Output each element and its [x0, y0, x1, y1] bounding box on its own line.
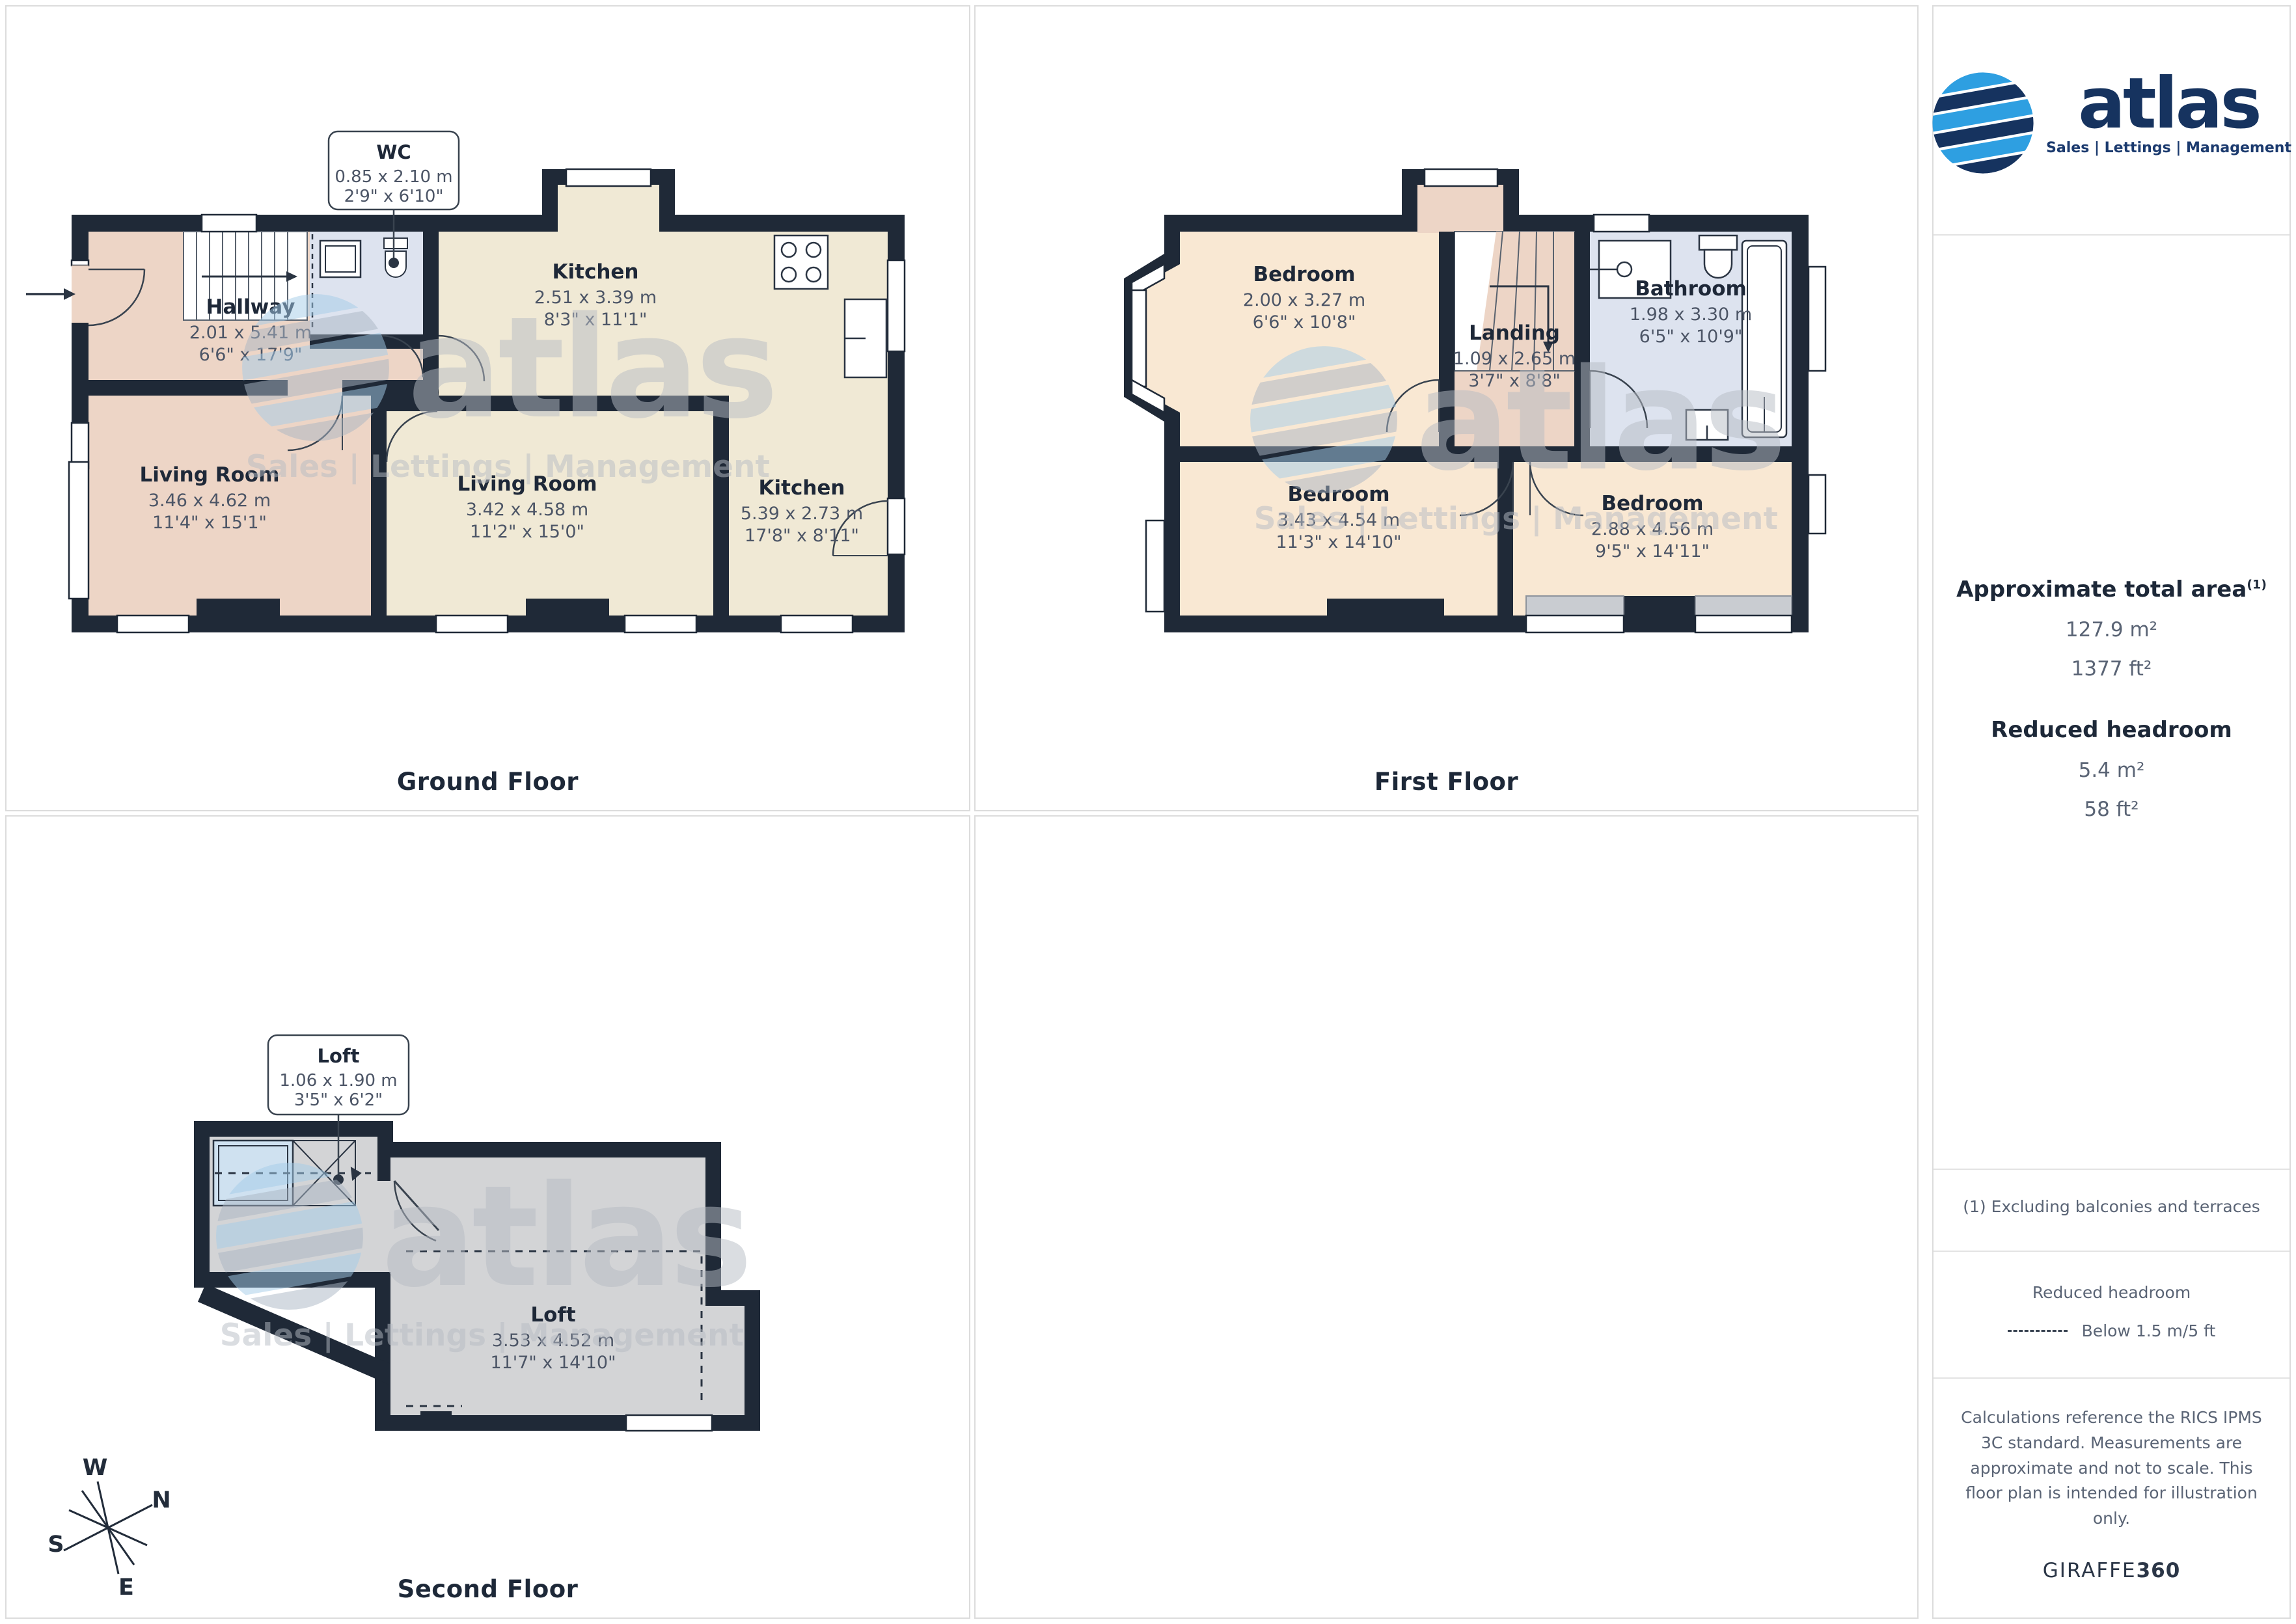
reduced-headroom-metric: 5.4 m²: [1934, 759, 2289, 782]
room-size-imperial: 11'2" x 15'0": [470, 522, 584, 542]
toilet-icon: [384, 238, 407, 277]
room-size-imperial: 17'8" x 8'11": [745, 526, 859, 546]
second-floor-panel: atlas Sales | Lettings | Management: [5, 815, 970, 1619]
loft-shower-icon: [213, 1141, 293, 1206]
room-name: Loft: [530, 1303, 576, 1327]
compass-south: S: [48, 1532, 64, 1558]
room-size-metric: 5.39 x 2.73 m: [741, 504, 863, 524]
room-size-metric: 1.09 x 2.65 m: [1453, 349, 1576, 369]
compass-west: W: [83, 1455, 108, 1481]
floor-label-second: Second Floor: [7, 1575, 969, 1603]
sidebar-divider: [1934, 234, 2289, 236]
sidebar-divider: [1934, 1377, 2289, 1379]
sink-icon: [1686, 410, 1728, 440]
room-name: Living Room: [457, 472, 597, 496]
room-size-imperial: 11'3" x 14'10": [1276, 532, 1401, 552]
room-size-metric: 3.46 x 4.62 m: [148, 491, 271, 511]
info-sidebar: atlas Sales | Lettings | Management Appr…: [1932, 5, 2291, 1619]
disclaimer-block: Calculations reference the RICS IPMS 3C …: [1934, 1405, 2289, 1582]
room-size-metric: 2.51 x 3.39 m: [534, 288, 657, 308]
total-area-imperial: 1377 ft²: [1934, 657, 2289, 681]
dashed-line-sample: [2008, 1330, 2068, 1332]
room-name: Living Room: [139, 463, 279, 487]
ground-floor-panel: atlas Sales | Lettings | Management: [5, 5, 970, 811]
room-name: Loft: [318, 1045, 360, 1067]
reduced-headroom-imperial: 58 ft²: [1934, 798, 2289, 821]
atlas-logo: atlas Sales | Lettings | Management: [1934, 72, 2289, 174]
room-size-imperial: 6'5" x 10'9": [1639, 327, 1743, 347]
floor-label-ground: Ground Floor: [7, 768, 969, 796]
room-size-metric: 3.42 x 4.58 m: [466, 500, 588, 520]
giraffe360-credit: GIRAFFE360: [1934, 1559, 2289, 1582]
room-size-imperial: 6'6" x 10'8": [1253, 312, 1356, 332]
disclaimer-text: Calculations reference the RICS IPMS 3C …: [1934, 1405, 2289, 1532]
atlas-globe-icon: [1932, 72, 2034, 174]
room-name: Bedroom: [1601, 492, 1703, 515]
room-size-imperial: 3'7" x 8'8": [1468, 371, 1561, 391]
ground-floor-plan: WC 0.85 x 2.10 m 2'9" x 6'10" Hallway 2.…: [7, 7, 969, 787]
room-name: Kitchen: [552, 260, 638, 284]
room-name: WC: [376, 141, 411, 163]
room-name: Bathroom: [1635, 277, 1747, 301]
room-name: Bedroom: [1287, 483, 1389, 506]
sidebar-divider: [1934, 1169, 2289, 1170]
wc-room: [310, 232, 423, 349]
hob-icon: [774, 236, 828, 289]
room-size-metric: 0.85 x 2.10 m: [335, 167, 452, 187]
total-area-block: Approximate total area(1) 127.9 m² 1377 …: [1934, 576, 2289, 821]
logo-tagline: Sales | Lettings | Management: [2046, 140, 2291, 156]
legend-item: Below 1.5 m/5 ft: [2082, 1321, 2216, 1340]
floor-label-first: First Floor: [976, 768, 1917, 796]
room-size-imperial: 6'6" x 17'9": [199, 345, 303, 365]
footnote-block: (1) Excluding balconies and terraces: [1934, 1197, 2289, 1216]
empty-panel: [974, 815, 1919, 1619]
room-name: Bedroom: [1253, 263, 1355, 286]
room-size-imperial: 3'5" x 6'2": [294, 1090, 383, 1110]
room-size-imperial: 9'5" x 14'11": [1595, 541, 1710, 562]
room-size-imperial: 11'4" x 15'1": [152, 513, 267, 533]
room-size-metric: 3.43 x 4.54 m: [1278, 510, 1400, 530]
room-size-metric: 1.98 x 3.30 m: [1630, 304, 1752, 325]
reduced-headroom-heading: Reduced headroom: [1934, 717, 2289, 743]
compass-north: N: [152, 1487, 171, 1513]
legend-heading: Reduced headroom: [1934, 1283, 2289, 1302]
room-size-metric: 3.53 x 4.52 m: [492, 1331, 614, 1351]
legend-block: Reduced headroom Below 1.5 m/5 ft: [1934, 1283, 2289, 1340]
room-size-metric: 2.00 x 3.27 m: [1243, 290, 1365, 310]
room-size-imperial: 11'7" x 14'10": [490, 1353, 616, 1373]
footnote-marker: (1): [2247, 578, 2267, 592]
logo-text: atlas: [2078, 72, 2260, 136]
room-name: Hallway: [206, 295, 295, 319]
room-size-metric: 2.01 x 5.41 m: [189, 323, 312, 343]
first-floor-panel: atlas Sales | Lettings | Management: [974, 5, 1919, 811]
second-floor-plan: Loft 1.06 x 1.90 m 3'5" x 6'2" Loft 3.53…: [7, 817, 969, 1597]
bathtub-icon: [1742, 241, 1786, 437]
room-size-imperial: 8'3" x 11'1": [544, 310, 648, 330]
room-size-imperial: 2'9" x 6'10": [344, 187, 444, 206]
sidebar-divider: [1934, 1251, 2289, 1252]
room-name: Kitchen: [758, 476, 845, 500]
shower-icon: [320, 241, 361, 277]
total-area-heading: Approximate total area(1): [1934, 576, 2289, 602]
room-size-metric: 2.88 x 4.56 m: [1591, 519, 1714, 539]
total-area-metric: 127.9 m²: [1934, 618, 2289, 642]
room-name: Landing: [1469, 321, 1560, 345]
footnote-text: (1) Excluding balconies and terraces: [1934, 1197, 2289, 1216]
kitchen-sink-icon: [845, 299, 886, 377]
first-floor-plan: Bedroom 2.00 x 3.27 m 6'6" x 10'8" Landi…: [976, 7, 1917, 787]
room-size-metric: 1.06 x 1.90 m: [279, 1071, 397, 1090]
